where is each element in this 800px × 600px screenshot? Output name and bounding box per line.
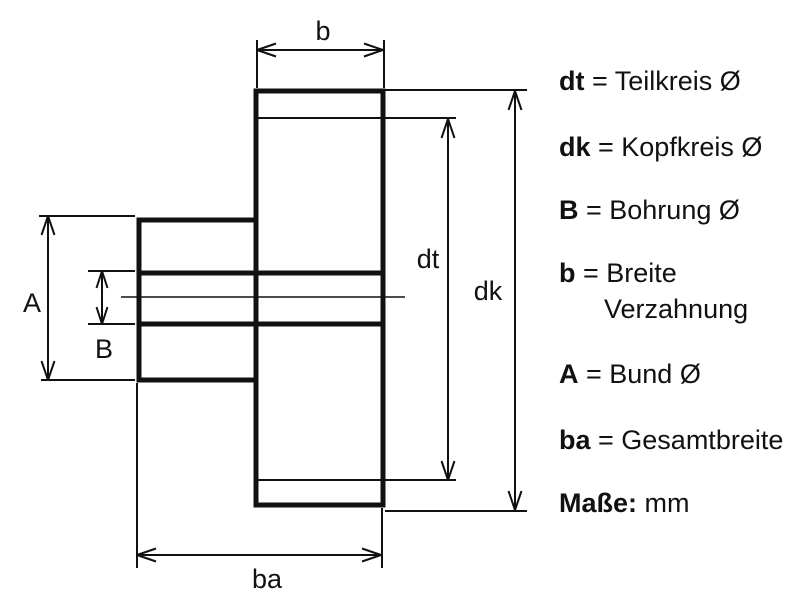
svg-text:ba: ba bbox=[252, 564, 283, 594]
svg-text:ba = Gesamtbreite: ba = Gesamtbreite bbox=[559, 425, 783, 455]
svg-text:Maße: mm: Maße: mm bbox=[559, 488, 690, 518]
svg-text:dt = Teilkreis Ø: dt = Teilkreis Ø bbox=[559, 66, 741, 96]
svg-text:B: B bbox=[95, 334, 113, 364]
svg-text:dt: dt bbox=[417, 244, 440, 274]
svg-text:b: b bbox=[315, 16, 330, 46]
svg-text:B = Bohrung Ø: B = Bohrung Ø bbox=[559, 195, 740, 225]
svg-text:A: A bbox=[23, 288, 41, 318]
svg-text:Verzahnung: Verzahnung bbox=[604, 294, 748, 324]
svg-text:dk: dk bbox=[474, 276, 503, 306]
svg-text:A = Bund Ø: A = Bund Ø bbox=[559, 359, 701, 389]
svg-text:b = Breite: b = Breite bbox=[559, 258, 677, 288]
svg-text:dk = Kopfkreis Ø: dk = Kopfkreis Ø bbox=[559, 132, 762, 162]
